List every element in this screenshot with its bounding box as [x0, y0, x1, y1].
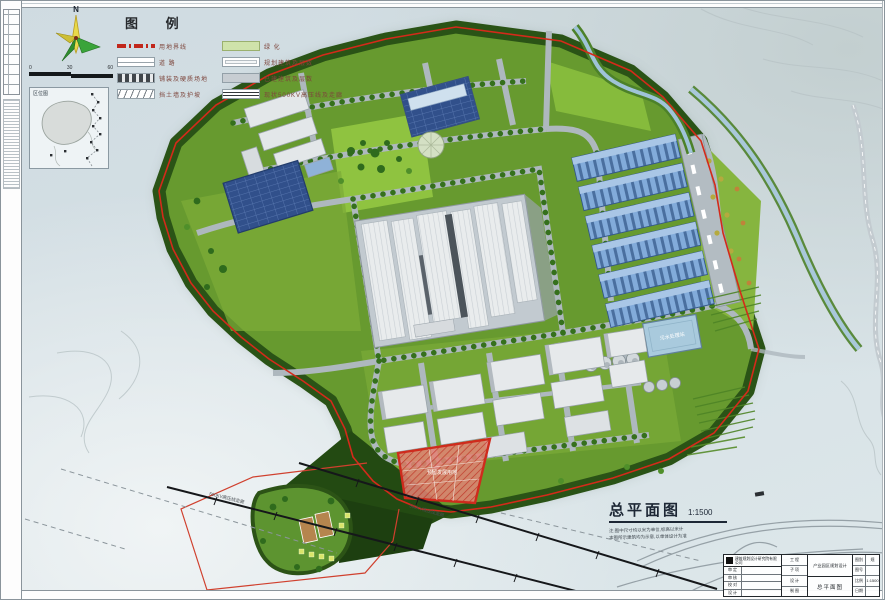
location-inset-map: 区位图 [29, 87, 109, 169]
slope-swatch [117, 89, 155, 99]
field-label-number: 图号 [853, 566, 866, 576]
powerline-swatch [222, 89, 260, 99]
titleblock-names: 产业园区规划设计 总平面图 [808, 555, 853, 596]
field-label-date: 日期 [853, 587, 866, 597]
legend-item-road: 道 路 [117, 56, 208, 68]
plan-sheet: 污水处理站 预留发展用地 [0, 0, 885, 600]
scale-bar-graphic [29, 72, 113, 78]
sig-label-check: 校 对 [724, 582, 742, 589]
built-building-swatch [222, 73, 260, 83]
mid-label-1: 子 项 [782, 566, 807, 577]
north-label: N [73, 5, 79, 14]
legend-item-green: 绿 化 [222, 40, 343, 52]
drawing-title: 总平面图 [609, 499, 681, 520]
planned-building-swatch [222, 57, 260, 67]
sheet-top-margin [1, 1, 885, 8]
sig-label-approve: 审 定 [724, 567, 742, 574]
field-value-type: 规 [866, 555, 879, 565]
legend-column-right: 绿 化 规划建筑及层数 已建建筑及层数 现状500KV高压线及走廊 [222, 40, 343, 100]
field-value-date [866, 587, 879, 597]
sig-label-review: 审 核 [724, 575, 742, 582]
scale-bar: 0 30 60 [29, 65, 113, 78]
legend-item-powerline: 现状500KV高压线及走廊 [222, 88, 343, 100]
field-value-scale: 1:1500 [866, 576, 879, 586]
sig-label-design: 设 计 [724, 590, 742, 597]
scale-tick-2: 60 [107, 65, 113, 71]
green-swatch [222, 41, 260, 51]
legend-column-left: 用地界线 道 路 铺装及硬质场地 挡土墙及护坡 [117, 40, 208, 100]
scale-tick-1: 30 [67, 65, 73, 71]
road-swatch [117, 57, 155, 67]
titleblock-company-cell: 建筑规划设计研究院有限公司 [724, 555, 781, 567]
scale-tick-0: 0 [29, 65, 32, 71]
boundary-swatch [117, 44, 155, 48]
titleblock-fields: 图别规 图号 比例1:1500 日期 [853, 555, 879, 596]
project-name: 产业园区规划设计 [808, 555, 852, 577]
field-value-number [866, 566, 879, 576]
legend-item-boundary: 用地界线 [117, 40, 208, 52]
notes-block [3, 99, 20, 189]
north-arrow: N [45, 7, 107, 67]
field-label-scale: 比例 [853, 576, 866, 586]
paving-swatch [117, 73, 155, 83]
legend-panel: 图 例 用地界线 道 路 铺装及硬质场地 挡土墙及护坡 [117, 9, 347, 100]
legend-title: 图 例 [125, 13, 347, 32]
titleblock-table: 建筑规划设计研究院有限公司 审 定 审 核 校 对 设 计 工 程 子 项 设 … [723, 554, 880, 597]
legend-item-slope: 挡土墙及护坡 [117, 88, 208, 100]
inset-map-graphic [30, 88, 108, 168]
compass-icon [45, 7, 107, 67]
drawing-scale: 1:1500 [688, 508, 712, 517]
legend-item-built-building: 已建建筑及层数 [222, 72, 343, 84]
field-label-type: 图别 [853, 555, 866, 565]
company-name: 建筑规划设计研究院有限公司 [735, 557, 779, 565]
mid-label-2: 设 计 [782, 576, 807, 587]
titleblock-mid-labels: 工 程 子 项 设 计 制 图 [782, 555, 808, 596]
revision-table [3, 9, 20, 95]
mid-label-0: 工 程 [782, 555, 807, 566]
legend-item-planned-building: 规划建筑及层数 [222, 56, 343, 68]
company-logo [726, 557, 733, 564]
mid-label-3: 制 图 [782, 587, 807, 597]
parcel-label: 预留发展用地 [427, 469, 457, 476]
titleblock-signatures: 建筑规划设计研究院有限公司 审 定 审 核 校 对 设 计 [724, 555, 782, 596]
legend-item-paving: 铺装及硬质场地 [117, 72, 208, 84]
drawing-title-block: 总平面图 1:1500 注:图中尺寸均以米为单位,标高以米计 本图所示建筑均为示… [609, 499, 789, 540]
drawing-name: 总平面图 [808, 577, 852, 596]
sheet-left-strip [1, 1, 22, 600]
drawing-notes: 注:图中尺寸均以米为单位,标高以米计 本图所示建筑均为示意,以单体设计为准 [609, 524, 789, 542]
